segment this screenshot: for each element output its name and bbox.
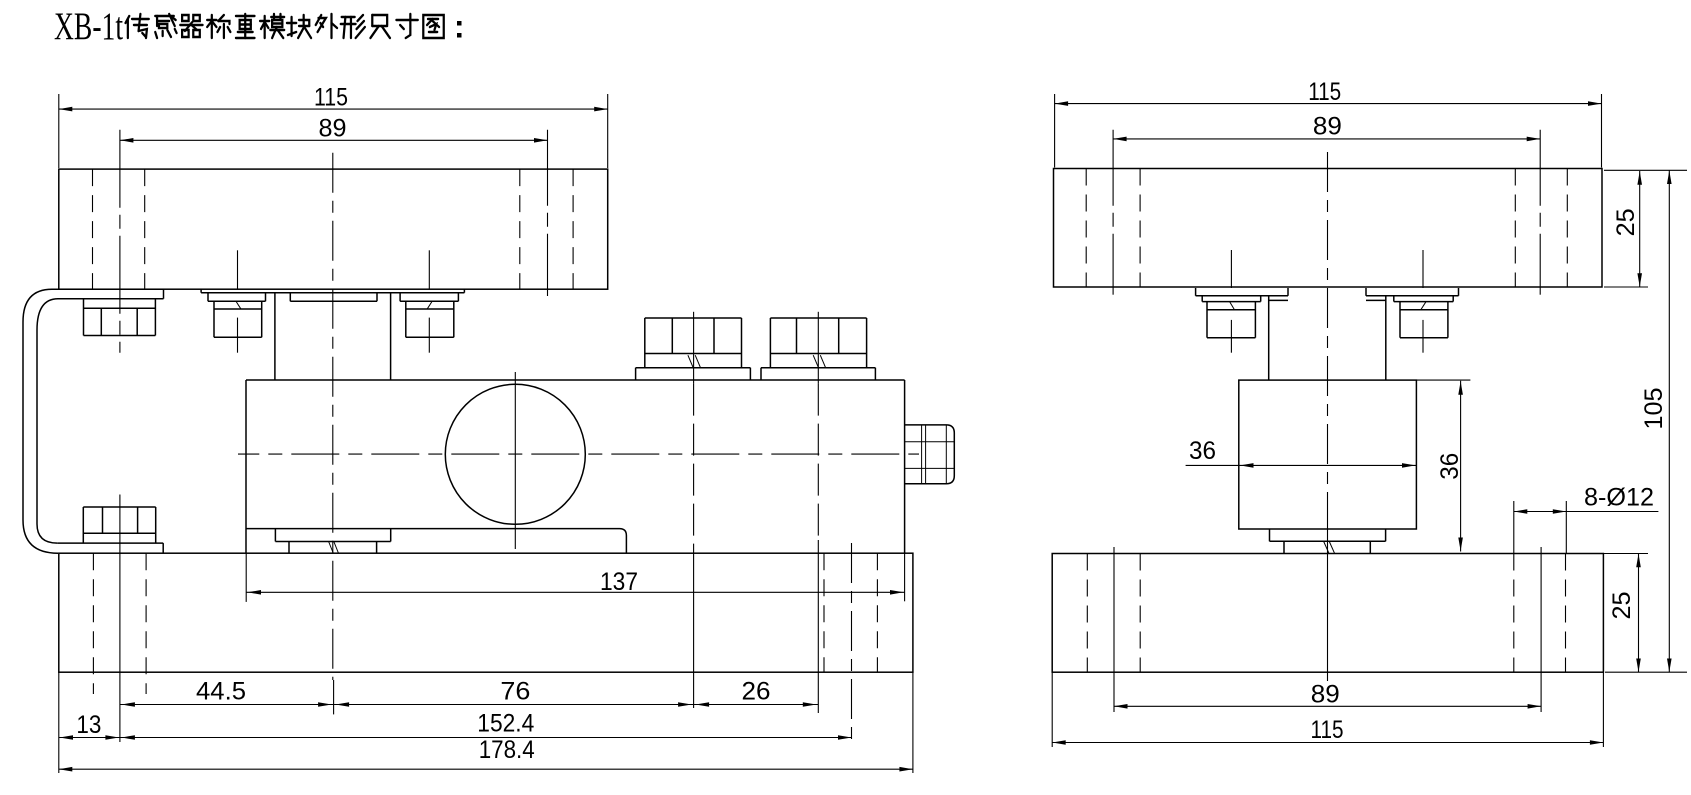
svg-text:25: 25: [1612, 208, 1640, 236]
svg-text:178.4: 178.4: [479, 736, 535, 764]
svg-text:89: 89: [1313, 113, 1342, 141]
svg-text:152.4: 152.4: [477, 710, 534, 738]
svg-text:8-Ø12: 8-Ø12: [1584, 484, 1654, 512]
svg-text:25: 25: [1608, 592, 1636, 620]
svg-text:89: 89: [1311, 681, 1340, 709]
svg-text:105: 105: [1640, 388, 1668, 430]
svg-text:44.5: 44.5: [196, 678, 246, 706]
svg-text:115: 115: [1308, 78, 1341, 106]
svg-text:26: 26: [742, 678, 771, 706]
svg-text:137: 137: [600, 568, 638, 596]
svg-text:13: 13: [76, 711, 101, 739]
svg-text:36: 36: [1189, 437, 1216, 465]
svg-text:115: 115: [314, 84, 348, 112]
svg-text:76: 76: [500, 678, 530, 706]
svg-text:115: 115: [1311, 716, 1344, 744]
svg-text:XB-1t: XB-1t: [54, 5, 123, 48]
svg-text:89: 89: [319, 114, 347, 142]
svg-text:36: 36: [1436, 453, 1464, 480]
